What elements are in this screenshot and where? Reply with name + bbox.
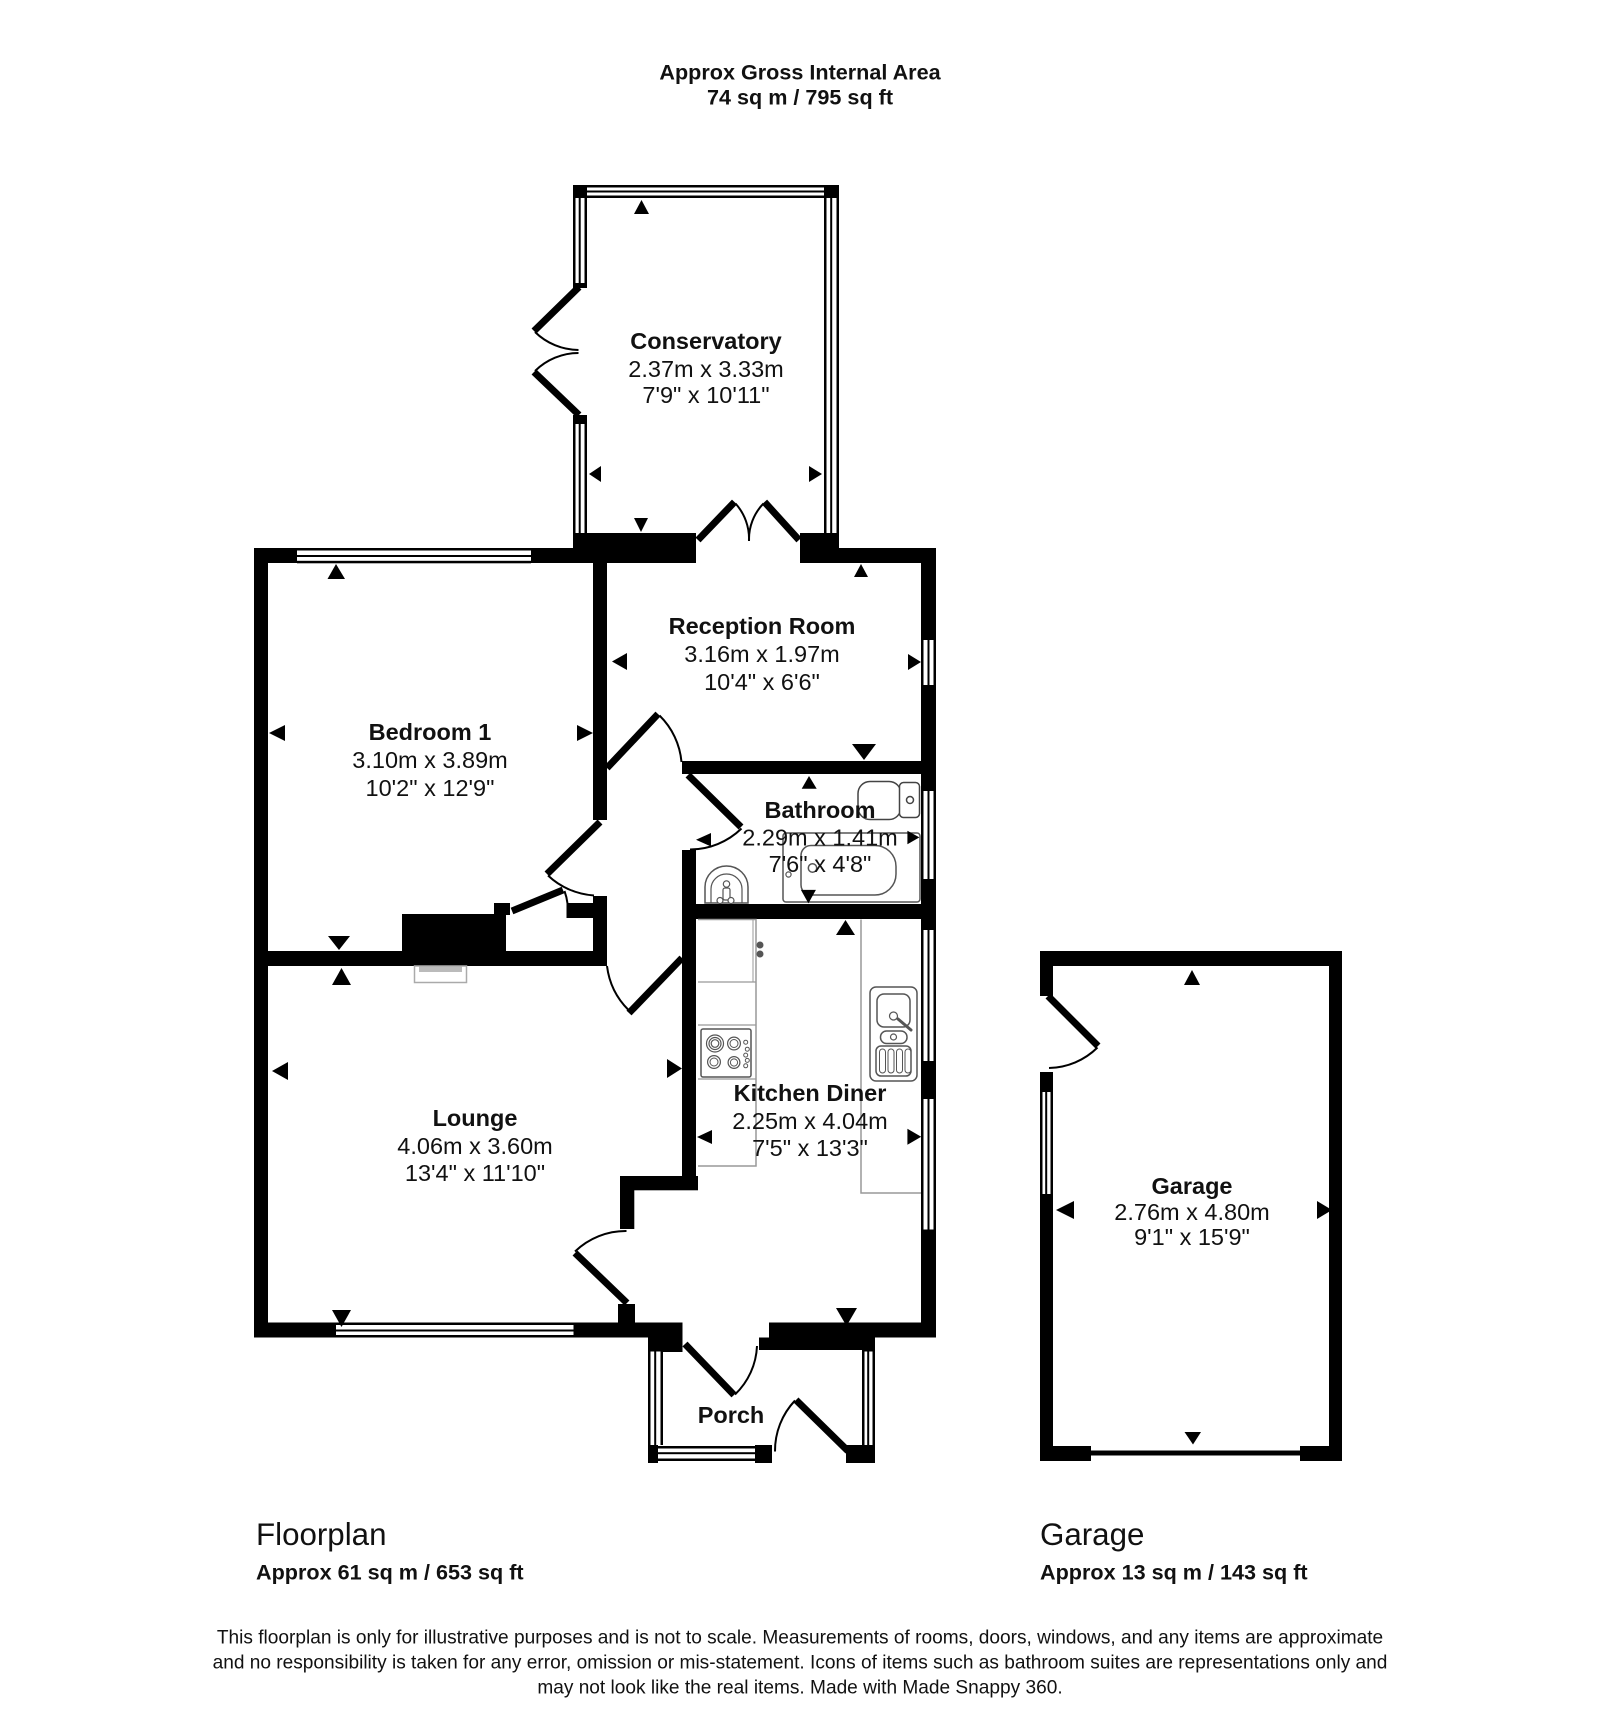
svg-text:10'4" x 6'6": 10'4" x 6'6" bbox=[704, 669, 820, 695]
svg-text:Kitchen Diner: Kitchen Diner bbox=[734, 1080, 887, 1106]
svg-text:4.06m x 3.60m: 4.06m x 3.60m bbox=[397, 1133, 552, 1159]
svg-text:Floorplan: Floorplan bbox=[256, 1517, 386, 1552]
svg-text:2.25m x 4.04m: 2.25m x 4.04m bbox=[732, 1108, 887, 1134]
svg-text:Approx Gross Internal Area: Approx Gross Internal Area bbox=[659, 60, 941, 85]
svg-text:2.29m x 1.41m: 2.29m x 1.41m bbox=[742, 825, 897, 851]
svg-text:7'5" x 13'3": 7'5" x 13'3" bbox=[752, 1135, 868, 1161]
svg-text:74 sq m / 795 sq ft: 74 sq m / 795 sq ft bbox=[707, 85, 893, 110]
svg-text:Bathroom: Bathroom bbox=[765, 797, 876, 823]
svg-text:Garage: Garage bbox=[1152, 1173, 1233, 1199]
svg-text:Lounge: Lounge bbox=[433, 1105, 518, 1131]
svg-text:Approx 13 sq m / 143 sq ft: Approx 13 sq m / 143 sq ft bbox=[1040, 1560, 1308, 1585]
svg-text:2.37m x 3.33m: 2.37m x 3.33m bbox=[628, 356, 783, 382]
svg-text:Reception Room: Reception Room bbox=[669, 613, 856, 639]
svg-text:13'4" x 11'10": 13'4" x 11'10" bbox=[405, 1160, 545, 1186]
svg-text:7'9" x 10'11": 7'9" x 10'11" bbox=[642, 382, 769, 408]
svg-text:Approx 61 sq m / 653 sq ft: Approx 61 sq m / 653 sq ft bbox=[256, 1560, 524, 1585]
svg-text:Porch: Porch bbox=[698, 1402, 765, 1428]
svg-text:2.76m x 4.80m: 2.76m x 4.80m bbox=[1114, 1199, 1269, 1225]
svg-text:may not look like the real ite: may not look like the real items. Made w… bbox=[537, 1678, 1062, 1699]
svg-text:10'2" x 12'9": 10'2" x 12'9" bbox=[366, 775, 495, 801]
svg-text:Conservatory: Conservatory bbox=[630, 328, 782, 354]
svg-text:This floorplan is only for ill: This floorplan is only for illustrative … bbox=[217, 1628, 1383, 1649]
svg-text:7'6" x 4'8": 7'6" x 4'8" bbox=[769, 851, 872, 877]
svg-text:and no responsibility is taken: and no responsibility is taken for any e… bbox=[213, 1653, 1388, 1674]
svg-text:3.16m x 1.97m: 3.16m x 1.97m bbox=[684, 641, 839, 667]
svg-text:3.10m x 3.89m: 3.10m x 3.89m bbox=[352, 747, 507, 773]
svg-text:Garage: Garage bbox=[1040, 1517, 1144, 1552]
svg-text:9'1" x 15'9": 9'1" x 15'9" bbox=[1134, 1224, 1250, 1250]
svg-text:Bedroom 1: Bedroom 1 bbox=[369, 719, 492, 745]
